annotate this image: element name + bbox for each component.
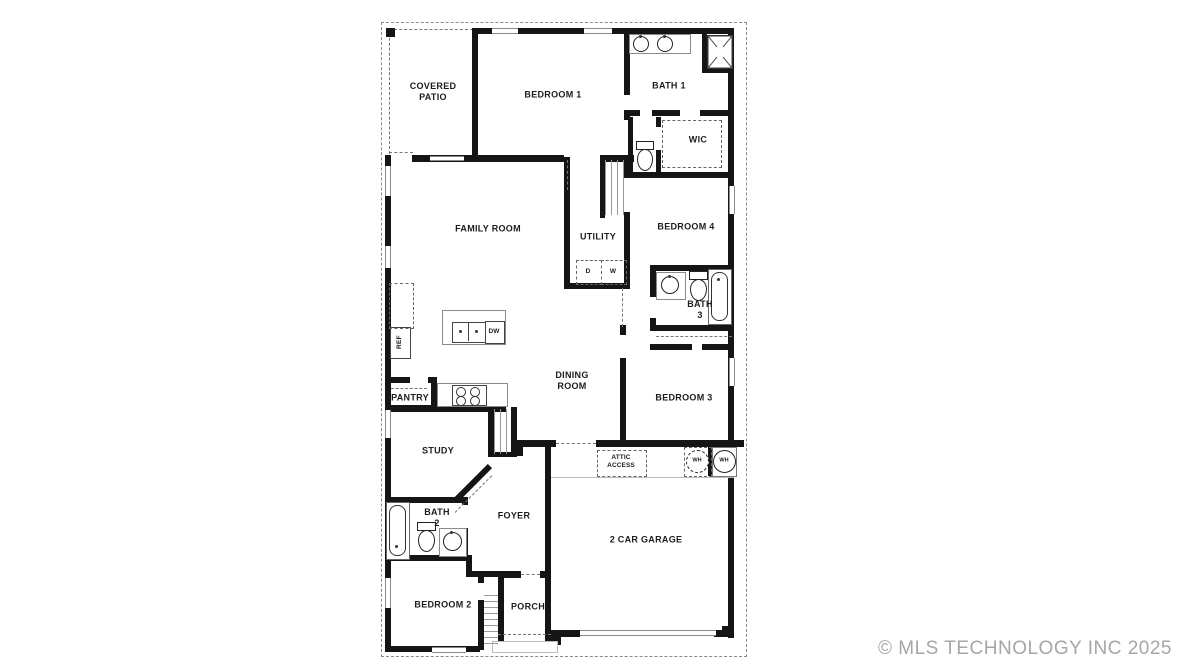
watermark: © MLS TECHNOLOGY INC 2025: [878, 638, 1172, 660]
wall-segment: [624, 110, 640, 116]
label-attic-access: ATTIC ACCESS: [607, 454, 635, 470]
garage-entry-door-dash: [556, 443, 596, 444]
room-label-garage: 2 CAR GARAGE: [610, 535, 683, 546]
patio-boundary: [389, 152, 413, 153]
room-label-foyer: FOYER: [498, 511, 531, 522]
garage-door-marker: [580, 630, 716, 636]
stove-burner: [456, 396, 466, 406]
opening-dash: [567, 160, 568, 190]
window-marker: [385, 410, 391, 438]
wall-segment: [502, 571, 522, 578]
closet-rod: [656, 336, 732, 337]
window-marker: [385, 166, 391, 196]
opening-dash: [622, 288, 623, 327]
room-label-dining-room: DINING ROOM: [555, 370, 588, 392]
window-marker: [432, 647, 466, 653]
sink-drain: [475, 330, 478, 333]
sink-icon: [633, 36, 649, 52]
window-marker: [729, 186, 735, 214]
label-dryer: D: [586, 268, 591, 276]
wall-segment: [564, 192, 570, 288]
patio-post: [386, 28, 395, 37]
closet-hatch: [484, 595, 498, 645]
faucet-dot: [663, 35, 666, 38]
sink-drain: [459, 330, 462, 333]
window-marker: [385, 246, 391, 268]
wall-segment: [652, 110, 680, 116]
wall-segment: [620, 358, 626, 447]
wall-segment: [472, 28, 478, 161]
island-sink: [452, 322, 486, 343]
room-label-bedroom-2: BEDROOM 2: [414, 600, 471, 611]
wall-segment: [650, 344, 692, 350]
label-washer: W: [610, 268, 616, 276]
sink-icon: [661, 276, 679, 294]
room-label-pantry: PANTRY: [391, 393, 429, 404]
room-label-bedroom-3: BEDROOM 3: [655, 393, 712, 404]
label-ref: REF: [396, 335, 404, 349]
wall-segment: [702, 344, 734, 350]
wall-segment: [545, 440, 551, 645]
wall-segment: [472, 155, 564, 162]
wall-segment: [548, 630, 580, 637]
pantry-shelf-dash: [391, 388, 427, 389]
window-marker: [385, 578, 391, 608]
room-label-study: STUDY: [422, 446, 454, 457]
front-door-dash: [521, 574, 540, 575]
room-label-bedroom-1: BEDROOM 1: [524, 90, 581, 101]
wall-segment: [620, 325, 626, 335]
label-dw: DW: [488, 328, 499, 336]
stove-burner: [470, 396, 480, 406]
wall-segment: [700, 110, 734, 116]
floor-plan-image: COVERED PATIO BEDROOM 1 BATH 1 WIC FAMIL…: [0, 0, 1182, 665]
faucet-dot: [450, 531, 453, 534]
room-label-bath-1: BATH 1: [652, 81, 686, 92]
wall-segment: [511, 407, 517, 457]
window-marker: [492, 28, 518, 34]
label-wh-2: WH: [719, 458, 728, 465]
room-label-bath-3: BATH 3: [687, 299, 713, 321]
patio-boundary: [389, 29, 473, 30]
shower-icon: [707, 35, 733, 69]
island-sink-divider: [468, 322, 469, 341]
wall-segment: [516, 440, 523, 456]
wall-segment: [478, 577, 484, 583]
label-wh-1: WH: [692, 458, 701, 465]
tub-drain: [717, 278, 720, 281]
room-label-bath-2: BATH 2: [424, 507, 450, 529]
patio-boundary: [389, 28, 390, 154]
wall-segment: [728, 28, 734, 638]
room-label-bedroom-4: BEDROOM 4: [657, 222, 714, 233]
window-marker: [584, 28, 612, 34]
room-label-family-room: FAMILY ROOM: [455, 224, 521, 235]
room-label-utility: UTILITY: [580, 232, 616, 243]
window-marker: [729, 358, 735, 386]
tub-drain: [395, 545, 398, 548]
closet-hatch: [494, 409, 511, 454]
closet-hatch: [605, 160, 624, 215]
wall-segment: [722, 626, 734, 637]
faucet-dot: [639, 35, 642, 38]
wall-segment: [650, 325, 734, 331]
roofline: [381, 22, 747, 657]
cabinet-dash: [389, 283, 414, 329]
window-marker: [430, 156, 464, 161]
room-label-porch: PORCH: [511, 602, 545, 613]
sink-icon: [443, 532, 462, 551]
wall-segment: [656, 117, 661, 127]
room-label-wic: WIC: [689, 135, 707, 146]
wall-segment: [628, 117, 633, 172]
porch-stoop: [492, 641, 558, 653]
wall-segment: [628, 172, 734, 178]
garage-shelf-line: [551, 477, 734, 478]
porch-edge-dash: [498, 634, 551, 635]
wall-segment: [388, 377, 410, 383]
wall-segment: [540, 571, 551, 578]
wall-segment: [656, 150, 661, 174]
room-label-covered-patio: COVERED PATIO: [410, 81, 457, 103]
faucet-dot: [668, 275, 671, 278]
sink-icon: [657, 36, 673, 52]
bathtub-icon: [389, 505, 406, 556]
